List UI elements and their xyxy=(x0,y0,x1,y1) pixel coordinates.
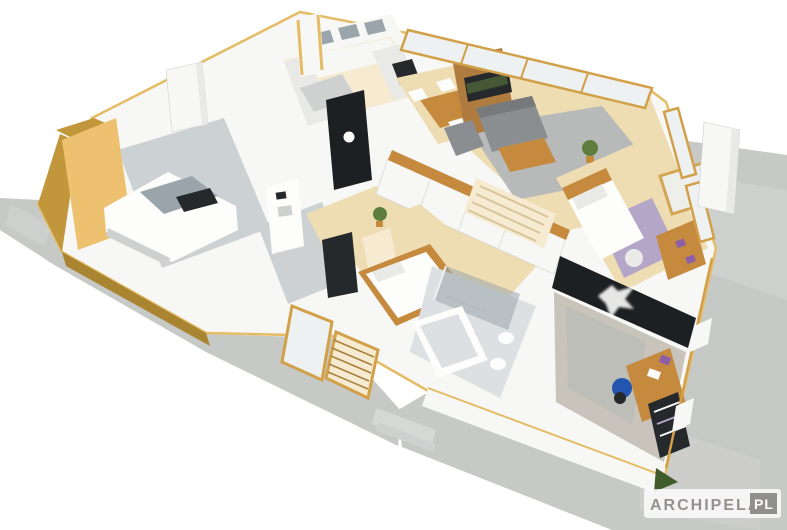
kitchen-corner-pillar xyxy=(296,13,324,77)
watermark: ARCHIPELAG PL xyxy=(644,489,781,518)
water-heater xyxy=(266,178,304,254)
toilet xyxy=(498,332,514,344)
chimney-right xyxy=(698,122,740,214)
chimney-left xyxy=(166,62,208,132)
watermark-suffix: PL xyxy=(754,496,774,512)
bedroom-tv xyxy=(322,232,358,298)
desk-chair xyxy=(625,249,643,267)
floorplan-render: ARCHIPELAG PL xyxy=(0,0,787,530)
bidet xyxy=(490,358,506,370)
